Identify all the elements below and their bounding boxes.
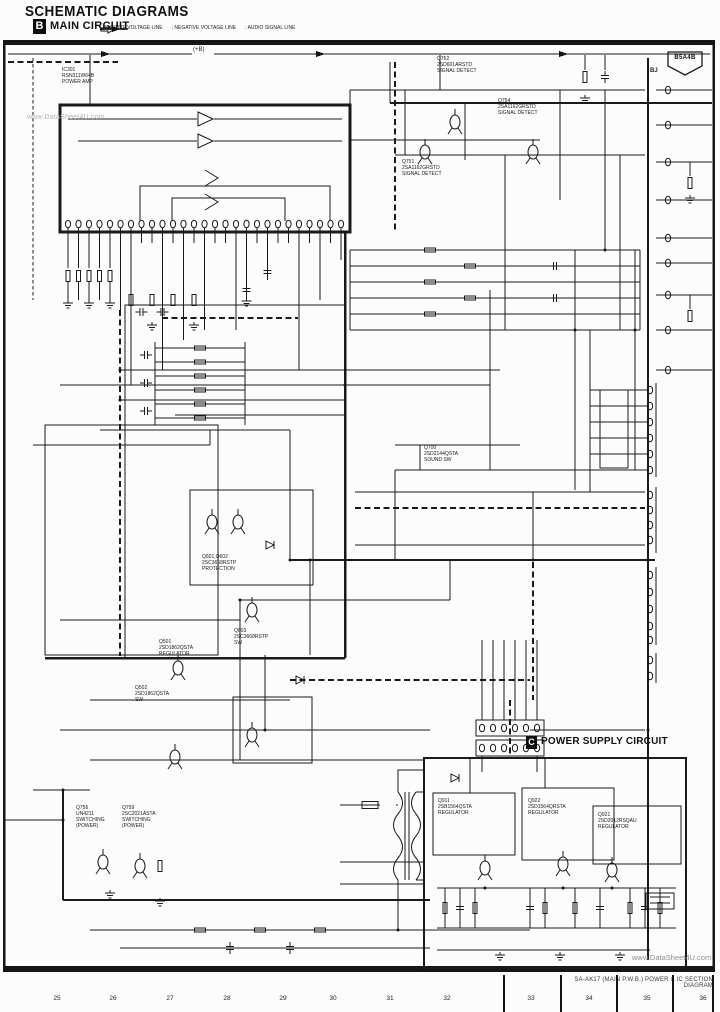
resistor-ladder — [140, 342, 245, 425]
power-supply-badge: C — [526, 736, 537, 749]
label-q603: Q6032SC3668RSTPSW — [234, 628, 268, 646]
plus-b-label: (+B) — [193, 47, 205, 53]
label-q759: Q7592SC2021ASTASWITCHING(POWER) — [122, 805, 156, 829]
label-q754: Q7542SA1162GRSTDSIGNAL DETECT — [498, 98, 538, 116]
ruler-36: 36 — [694, 995, 712, 1002]
edge-connectors — [647, 86, 670, 683]
legend-negative: : NEGATIVE VOLTAGE LINE — [172, 25, 236, 31]
line-legend: : POSITIVE VOLTAGE LINE : NEGATIVE VOLTA… — [100, 25, 295, 31]
corner-note: BJ — [650, 68, 658, 74]
label-ic301: IC301RSN311W64BPOWER AMP — [62, 67, 94, 85]
label-q751: Q7512SA1162GRSTDSIGNAL DETECT — [402, 159, 442, 177]
ruler-35: 35 — [638, 995, 656, 1002]
label-q502: Q5022SD1862QSTASW — [135, 685, 169, 703]
footer-caption: SA-AK17 (MAIN P.W.B.) POWER & IC SECTION… — [553, 977, 713, 989]
ruler-separator — [712, 975, 714, 1012]
legend-audio: : AUDIO SIGNAL LINE — [245, 25, 295, 31]
open-arrow-icon — [100, 25, 116, 34]
ruler-separator — [560, 975, 562, 1012]
ruler-26: 26 — [104, 995, 122, 1002]
ruler-28: 28 — [218, 995, 236, 1002]
label-q922: Q9222SD1564QRSTAREGULATOR — [528, 798, 566, 816]
label-q756: Q756UN4211SWITCHING(POWER) — [76, 805, 105, 829]
main-circuit-badge: B — [33, 19, 46, 34]
ruler-33: 33 — [522, 995, 540, 1002]
watermark-bottom: www.DataSheet4U.com — [632, 953, 711, 962]
legend-audio-label: : AUDIO SIGNAL LINE — [245, 25, 295, 31]
ruler-32: 32 — [438, 995, 456, 1002]
ruler-29: 29 — [274, 995, 292, 1002]
label-q700: Q7002SD2144QSTASOUND SW — [424, 445, 458, 463]
ruler-separator — [672, 975, 674, 1012]
page-title: SCHEMATIC DIAGRAMS — [25, 3, 189, 19]
watermark-top: www.DataSheet4U.com — [27, 114, 105, 121]
label-q501: Q5012SD1862QSTAREGULATOR — [159, 639, 193, 657]
dashed-buses — [8, 62, 645, 756]
ruler-25: 25 — [48, 995, 66, 1002]
label-q601: Q601,Q6022SC3668RSTPPROTECTION — [202, 554, 236, 572]
ruler-34: 34 — [580, 995, 598, 1002]
power-supply-block — [340, 758, 686, 968]
page-ref: B5A4B — [668, 55, 702, 61]
ruler-separator — [616, 975, 618, 1012]
page-frame — [3, 40, 715, 972]
ruler-separator — [503, 975, 505, 1012]
ruler-27: 27 — [161, 995, 179, 1002]
ruler-30: 30 — [324, 995, 342, 1002]
label-q921: Q9212SD2012RSQAUREGULATOR — [598, 812, 637, 830]
label-q752: Q7522SD601ARSTDSIGNAL DETECT — [437, 56, 477, 74]
main-ic-block — [60, 105, 350, 243]
ruler-31: 31 — [381, 995, 399, 1002]
schematic-canvas — [0, 0, 720, 1012]
power-supply-label: POWER SUPPLY CIRCUIT — [541, 736, 668, 747]
legend-negative-label: : NEGATIVE VOLTAGE LINE — [172, 25, 236, 31]
label-q911: Q9112SB1564QSTAREGULATOR — [438, 798, 472, 816]
schematic-page: SCHEMATIC DIAGRAMS B MAIN CIRCUIT : POSI… — [0, 0, 720, 1012]
